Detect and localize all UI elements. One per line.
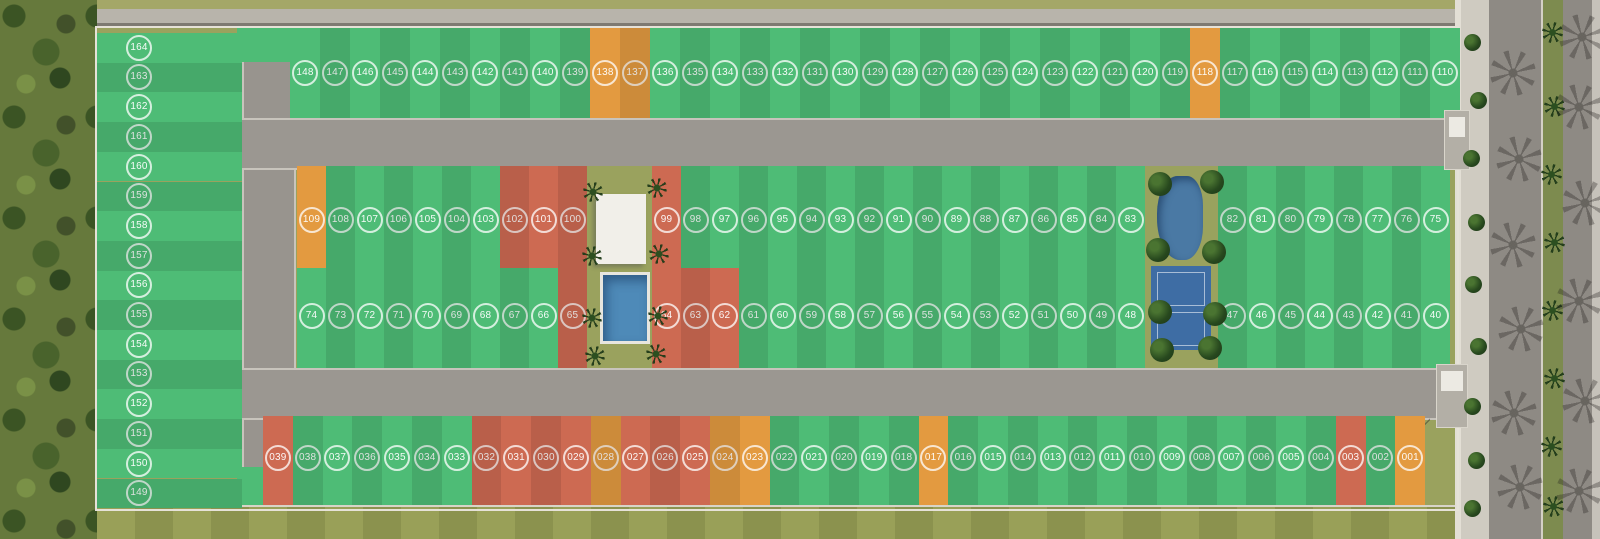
lot-155[interactable]: 155 xyxy=(97,300,242,330)
lot-number-badge: 150 xyxy=(126,451,152,477)
lot-number-badge: 96 xyxy=(741,207,767,233)
lot-number-badge: 136 xyxy=(652,60,678,86)
lot-103[interactable]: 103 xyxy=(471,166,500,268)
lot-016[interactable]: 016 xyxy=(948,416,978,505)
lot-115[interactable]: 115 xyxy=(1280,28,1310,118)
lot-number-badge: 55 xyxy=(915,303,941,329)
lot-number-badge: 44 xyxy=(1307,303,1333,329)
lot-125[interactable]: 125 xyxy=(980,28,1010,118)
lot-number-badge: 94 xyxy=(799,207,825,233)
lot-number-badge: 158 xyxy=(126,213,152,239)
lot-number-badge: 140 xyxy=(532,60,558,86)
east-road-far-sidewalk xyxy=(1592,0,1600,539)
tree-icon xyxy=(1200,170,1224,194)
lot-53[interactable]: 53 xyxy=(971,268,1000,368)
lot-68[interactable]: 68 xyxy=(471,268,500,368)
shrub-icon xyxy=(1464,500,1481,517)
lot-027[interactable]: 027 xyxy=(621,416,651,505)
lot-128[interactable]: 128 xyxy=(890,28,920,118)
lot-number-badge: 149 xyxy=(126,480,152,506)
lot-number-badge: 42 xyxy=(1365,303,1391,329)
lot-158[interactable]: 158 xyxy=(97,211,242,241)
lot-149[interactable]: 149 xyxy=(97,479,242,509)
lot-number-badge: 110 xyxy=(1432,60,1458,86)
lot-number-badge: 129 xyxy=(862,60,888,86)
lot-number-badge: 43 xyxy=(1336,303,1362,329)
lot-number-badge: 72 xyxy=(357,303,383,329)
lot-number-badge: 127 xyxy=(922,60,948,86)
lot-152[interactable]: 152 xyxy=(97,389,242,419)
lot-038[interactable]: 038 xyxy=(293,416,323,505)
lot-43[interactable]: 43 xyxy=(1334,268,1363,368)
lot-number-badge: 025 xyxy=(682,445,708,471)
lot-number-badge: 83 xyxy=(1118,207,1144,233)
lot-93[interactable]: 93 xyxy=(826,166,855,268)
lot-number-badge: 99 xyxy=(654,207,680,233)
north-boundary-land xyxy=(97,0,1455,28)
lot-62[interactable]: 62 xyxy=(710,268,739,368)
lot-140[interactable]: 140 xyxy=(530,28,560,118)
lot-number-badge: 60 xyxy=(770,303,796,329)
lot-145[interactable]: 145 xyxy=(380,28,410,118)
lot-number-badge: 126 xyxy=(952,60,978,86)
lot-122[interactable]: 122 xyxy=(1070,28,1100,118)
lot-75[interactable]: 75 xyxy=(1421,166,1450,268)
lot-77[interactable]: 77 xyxy=(1363,166,1392,268)
tree-icon xyxy=(1203,302,1227,326)
master-plan-canvas: 1641631621611601591581571561551541531521… xyxy=(0,0,1600,539)
lot-number-badge: 125 xyxy=(982,60,1008,86)
lot-number-badge: 123 xyxy=(1042,60,1068,86)
lot-028[interactable]: 028 xyxy=(591,416,621,505)
lot-number-badge: 030 xyxy=(533,445,559,471)
lot-number-badge: 111 xyxy=(1402,60,1428,86)
lot-108[interactable]: 108 xyxy=(326,166,355,268)
lot-number-badge: 41 xyxy=(1394,303,1420,329)
lot-number-badge: 66 xyxy=(531,303,557,329)
palm-shadow xyxy=(1556,278,1600,324)
lot-71[interactable]: 71 xyxy=(384,268,413,368)
lot-102[interactable]: 102 xyxy=(500,166,529,268)
lot-017[interactable]: 017 xyxy=(919,416,949,505)
lot-020[interactable]: 020 xyxy=(829,416,859,505)
lot-number-badge: 100 xyxy=(560,207,586,233)
tree-icon xyxy=(1150,338,1174,362)
palm-shadow xyxy=(1490,222,1536,268)
lot-113[interactable]: 113 xyxy=(1340,28,1370,118)
lot-number-badge: 112 xyxy=(1372,60,1398,86)
lot-number-badge: 133 xyxy=(742,60,768,86)
lot-number-badge: 012 xyxy=(1069,445,1095,471)
palm-tree-icon xyxy=(648,306,668,326)
lot-018[interactable]: 018 xyxy=(889,416,919,505)
lot-number-badge: 79 xyxy=(1307,207,1333,233)
lot-97[interactable]: 97 xyxy=(710,166,739,268)
lot-number-badge: 51 xyxy=(1031,303,1057,329)
lot-50[interactable]: 50 xyxy=(1058,268,1087,368)
lot-85[interactable]: 85 xyxy=(1058,166,1087,268)
lot-number-badge: 93 xyxy=(828,207,854,233)
lot-84[interactable]: 84 xyxy=(1087,166,1116,268)
lot-number-badge: 020 xyxy=(831,445,857,471)
lot-number-badge: 002 xyxy=(1367,445,1393,471)
lot-number-badge: 010 xyxy=(1129,445,1155,471)
lot-135[interactable]: 135 xyxy=(680,28,710,118)
lot-number-badge: 023 xyxy=(742,445,768,471)
lot-114[interactable]: 114 xyxy=(1310,28,1340,118)
lot-number-badge: 98 xyxy=(683,207,709,233)
lot-011[interactable]: 011 xyxy=(1097,416,1127,505)
lot-61[interactable]: 61 xyxy=(739,268,768,368)
lot-number-badge: 033 xyxy=(444,445,470,471)
lot-80[interactable]: 80 xyxy=(1276,166,1305,268)
lot-78[interactable]: 78 xyxy=(1334,166,1363,268)
lot-153[interactable]: 153 xyxy=(97,360,242,390)
lot-142[interactable]: 142 xyxy=(470,28,500,118)
lot-132[interactable]: 132 xyxy=(770,28,800,118)
lot-021[interactable]: 021 xyxy=(799,416,829,505)
lot-63[interactable]: 63 xyxy=(681,268,710,368)
lot-86[interactable]: 86 xyxy=(1029,166,1058,268)
lot-number-badge: 026 xyxy=(652,445,678,471)
lot-012[interactable]: 012 xyxy=(1068,416,1098,505)
lot-81[interactable]: 81 xyxy=(1247,166,1276,268)
lot-number-badge: 109 xyxy=(299,207,325,233)
lot-029[interactable]: 029 xyxy=(561,416,591,505)
lot-number-badge: 120 xyxy=(1132,60,1158,86)
lot-69[interactable]: 69 xyxy=(442,268,471,368)
lot-116[interactable]: 116 xyxy=(1250,28,1280,118)
lot-number-badge: 118 xyxy=(1192,60,1218,86)
lot-139[interactable]: 139 xyxy=(560,28,590,118)
lot-number-badge: 156 xyxy=(126,272,152,298)
lot-number-badge: 84 xyxy=(1089,207,1115,233)
lot-number-badge: 116 xyxy=(1252,60,1278,86)
lot-147[interactable]: 147 xyxy=(320,28,350,118)
lot-133[interactable]: 133 xyxy=(740,28,770,118)
lot-number-badge: 85 xyxy=(1060,207,1086,233)
lot-006[interactable]: 006 xyxy=(1246,416,1276,505)
lot-005[interactable]: 005 xyxy=(1276,416,1306,505)
lot-number-badge: 130 xyxy=(832,60,858,86)
lot-number-badge: 024 xyxy=(712,445,738,471)
lot-037[interactable]: 037 xyxy=(323,416,353,505)
lot-123[interactable]: 123 xyxy=(1040,28,1070,118)
lot-number-badge: 115 xyxy=(1282,60,1308,86)
lot-number-badge: 50 xyxy=(1060,303,1086,329)
lot-48[interactable]: 48 xyxy=(1116,268,1145,368)
lot-number-badge: 105 xyxy=(415,207,441,233)
lot-83[interactable]: 83 xyxy=(1116,166,1145,268)
lot-74[interactable]: 74 xyxy=(297,268,326,368)
lot-70[interactable]: 70 xyxy=(413,268,442,368)
lot-127[interactable]: 127 xyxy=(920,28,950,118)
lot-031[interactable]: 031 xyxy=(501,416,531,505)
lot-039[interactable]: 039 xyxy=(263,416,293,505)
lot-106[interactable]: 106 xyxy=(384,166,413,268)
lot-number-badge: 139 xyxy=(562,60,588,86)
palm-shadow xyxy=(1491,390,1537,436)
lot-46[interactable]: 46 xyxy=(1247,268,1276,368)
lot-number-badge: 73 xyxy=(328,303,354,329)
lot-number-badge: 155 xyxy=(126,302,152,328)
lot-58[interactable]: 58 xyxy=(826,268,855,368)
swimming-pool xyxy=(600,272,650,344)
lot-45[interactable]: 45 xyxy=(1276,268,1305,368)
lot-number-badge: 021 xyxy=(801,445,827,471)
gatehouse-roof xyxy=(1449,117,1465,137)
lot-143[interactable]: 143 xyxy=(440,28,470,118)
lot-56[interactable]: 56 xyxy=(884,268,913,368)
lot-117[interactable]: 117 xyxy=(1220,28,1250,118)
lot-number-badge: 131 xyxy=(802,60,828,86)
lot-001[interactable]: 001 xyxy=(1395,416,1425,505)
lot-148[interactable]: 148 xyxy=(290,28,320,118)
palm-tree-icon xyxy=(585,346,605,366)
lot-104[interactable]: 104 xyxy=(442,166,471,268)
lot-009[interactable]: 009 xyxy=(1157,416,1187,505)
lot-number-badge: 144 xyxy=(412,60,438,86)
lot-number-badge: 013 xyxy=(1040,445,1066,471)
lot-150[interactable]: 150 xyxy=(97,449,242,479)
lot-008[interactable]: 008 xyxy=(1187,416,1217,505)
lot-66[interactable]: 66 xyxy=(529,268,558,368)
lot-154[interactable]: 154 xyxy=(97,330,242,360)
lot-number-badge: 45 xyxy=(1278,303,1304,329)
lot-number-badge: 68 xyxy=(473,303,499,329)
lot-136[interactable]: 136 xyxy=(650,28,680,118)
lot-number-badge: 148 xyxy=(292,60,318,86)
lot-015[interactable]: 015 xyxy=(978,416,1008,505)
lot-003[interactable]: 003 xyxy=(1336,416,1366,505)
lot-92[interactable]: 92 xyxy=(855,166,884,268)
lot-number-badge: 61 xyxy=(741,303,767,329)
lot-91[interactable]: 91 xyxy=(884,166,913,268)
lot-number-badge: 53 xyxy=(973,303,999,329)
palm-shadow xyxy=(1498,306,1544,352)
lot-67[interactable]: 67 xyxy=(500,268,529,368)
lot-number-badge: 101 xyxy=(531,207,557,233)
east-road-lane-east xyxy=(1563,0,1592,539)
palm-shadow xyxy=(1562,180,1600,226)
shrub-icon xyxy=(1465,276,1482,293)
lot-number-badge: 138 xyxy=(592,60,618,86)
lot-40[interactable]: 40 xyxy=(1421,268,1450,368)
lot-79[interactable]: 79 xyxy=(1305,166,1334,268)
palm-shadow xyxy=(1490,50,1536,96)
lot-033[interactable]: 033 xyxy=(442,416,472,505)
lot-034[interactable]: 034 xyxy=(412,416,442,505)
lot-number-badge: 92 xyxy=(857,207,883,233)
shrub-icon xyxy=(1470,338,1487,355)
lot-163[interactable]: 163 xyxy=(97,63,242,93)
lot-number-badge: 48 xyxy=(1118,303,1144,329)
tree-icon xyxy=(1202,240,1226,264)
lot-007[interactable]: 007 xyxy=(1217,416,1247,505)
lot-126[interactable]: 126 xyxy=(950,28,980,118)
lot-131[interactable]: 131 xyxy=(800,28,830,118)
lot-004[interactable]: 004 xyxy=(1306,416,1336,505)
lot-60[interactable]: 60 xyxy=(768,268,797,368)
lot-112[interactable]: 112 xyxy=(1370,28,1400,118)
lot-number-badge: 88 xyxy=(973,207,999,233)
lot-52[interactable]: 52 xyxy=(1000,268,1029,368)
lot-110[interactable]: 110 xyxy=(1430,28,1460,118)
lot-57[interactable]: 57 xyxy=(855,268,884,368)
palm-tree-icon xyxy=(582,246,602,266)
lot-025[interactable]: 025 xyxy=(680,416,710,505)
lot-035[interactable]: 035 xyxy=(382,416,412,505)
lot-88[interactable]: 88 xyxy=(971,166,1000,268)
lot-130[interactable]: 130 xyxy=(830,28,860,118)
lot-number-badge: 49 xyxy=(1089,303,1115,329)
lot-number-badge: 007 xyxy=(1218,445,1244,471)
lot-number-badge: 58 xyxy=(828,303,854,329)
lot-107[interactable]: 107 xyxy=(355,166,384,268)
lot-number-badge: 004 xyxy=(1308,445,1334,471)
lot-019[interactable]: 019 xyxy=(859,416,889,505)
lot-87[interactable]: 87 xyxy=(1000,166,1029,268)
lot-160[interactable]: 160 xyxy=(97,152,242,182)
lot-120[interactable]: 120 xyxy=(1130,28,1160,118)
lot-number-badge: 153 xyxy=(126,361,152,387)
shrub-icon xyxy=(1463,150,1480,167)
lot-111[interactable]: 111 xyxy=(1400,28,1430,118)
lot-022[interactable]: 022 xyxy=(770,416,800,505)
lot-141[interactable]: 141 xyxy=(500,28,530,118)
lot-98[interactable]: 98 xyxy=(681,166,710,268)
lot-013[interactable]: 013 xyxy=(1038,416,1068,505)
tree-icon xyxy=(1198,336,1222,360)
lot-number-badge: 006 xyxy=(1248,445,1274,471)
lot-49[interactable]: 49 xyxy=(1087,268,1116,368)
lot-023[interactable]: 023 xyxy=(740,416,770,505)
lot-number-badge: 77 xyxy=(1365,207,1391,233)
lot-89[interactable]: 89 xyxy=(942,166,971,268)
lot-95[interactable]: 95 xyxy=(768,166,797,268)
lot-number-badge: 135 xyxy=(682,60,708,86)
lot-number-badge: 104 xyxy=(444,207,470,233)
palm-tree-icon xyxy=(1544,368,1565,389)
lot-010[interactable]: 010 xyxy=(1127,416,1157,505)
lot-number-badge: 52 xyxy=(1002,303,1028,329)
lot-032[interactable]: 032 xyxy=(472,416,502,505)
lot-number-badge: 038 xyxy=(295,445,321,471)
lot-026[interactable]: 026 xyxy=(650,416,680,505)
lot-162[interactable]: 162 xyxy=(97,92,242,122)
lot-number-badge: 160 xyxy=(126,154,152,180)
lot-118[interactable]: 118 xyxy=(1190,28,1220,118)
lot-51[interactable]: 51 xyxy=(1029,268,1058,368)
lot-94[interactable]: 94 xyxy=(797,166,826,268)
lot-144[interactable]: 144 xyxy=(410,28,440,118)
lot-number-badge: 151 xyxy=(126,421,152,447)
lot-036[interactable]: 036 xyxy=(352,416,382,505)
gatehouse-south xyxy=(1436,364,1468,428)
palm-tree-icon xyxy=(1541,436,1562,457)
lot-96[interactable]: 96 xyxy=(739,166,768,268)
palm-shadow xyxy=(1556,468,1600,514)
lot-159[interactable]: 159 xyxy=(97,182,242,212)
lot-105[interactable]: 105 xyxy=(413,166,442,268)
lot-161[interactable]: 161 xyxy=(97,122,242,152)
lot-137[interactable]: 137 xyxy=(620,28,650,118)
tree-icon xyxy=(1148,300,1172,324)
lot-number-badge: 137 xyxy=(622,60,648,86)
tree-icon xyxy=(1146,238,1170,262)
lot-156[interactable]: 156 xyxy=(97,271,242,301)
lot-number-badge: 011 xyxy=(1099,445,1125,471)
lot-72[interactable]: 72 xyxy=(355,268,384,368)
lot-121[interactable]: 121 xyxy=(1100,28,1130,118)
shrub-icon xyxy=(1468,452,1485,469)
lot-number-badge: 81 xyxy=(1249,207,1275,233)
lot-number-badge: 017 xyxy=(920,445,946,471)
lot-42[interactable]: 42 xyxy=(1363,268,1392,368)
lot-41[interactable]: 41 xyxy=(1392,268,1421,368)
lot-119[interactable]: 119 xyxy=(1160,28,1190,118)
lot-number-badge: 164 xyxy=(126,35,152,61)
lot-number-badge: 128 xyxy=(892,60,918,86)
palm-shadow xyxy=(1496,136,1542,182)
lot-76[interactable]: 76 xyxy=(1392,166,1421,268)
lot-024[interactable]: 024 xyxy=(710,416,740,505)
lot-129[interactable]: 129 xyxy=(860,28,890,118)
lot-146[interactable]: 146 xyxy=(350,28,380,118)
lot-124[interactable]: 124 xyxy=(1010,28,1040,118)
lot-54[interactable]: 54 xyxy=(942,268,971,368)
lot-number-badge: 113 xyxy=(1342,60,1368,86)
lot-number-badge: 022 xyxy=(771,445,797,471)
lot-109[interactable]: 109 xyxy=(297,166,326,268)
lot-151[interactable]: 151 xyxy=(97,419,242,449)
palm-shadow xyxy=(1556,84,1600,130)
lot-number-badge: 132 xyxy=(772,60,798,86)
lot-number-badge: 102 xyxy=(502,207,528,233)
lot-number-badge: 71 xyxy=(386,303,412,329)
lot-134[interactable]: 134 xyxy=(710,28,740,118)
lot-55[interactable]: 55 xyxy=(913,268,942,368)
lot-number-badge: 154 xyxy=(126,332,152,358)
lot-157[interactable]: 157 xyxy=(97,241,242,271)
lot-44[interactable]: 44 xyxy=(1305,268,1334,368)
lot-number-badge: 162 xyxy=(126,94,152,120)
shrub-icon xyxy=(1470,92,1487,109)
lot-73[interactable]: 73 xyxy=(326,268,355,368)
lot-002[interactable]: 002 xyxy=(1366,416,1396,505)
lot-101[interactable]: 101 xyxy=(529,166,558,268)
lot-90[interactable]: 90 xyxy=(913,166,942,268)
lot-number-badge: 027 xyxy=(622,445,648,471)
palm-tree-icon xyxy=(646,344,666,364)
lot-164[interactable]: 164 xyxy=(97,33,242,63)
lot-number-badge: 106 xyxy=(386,207,412,233)
green-patch-northwest xyxy=(237,28,292,64)
lot-number-badge: 008 xyxy=(1189,445,1215,471)
lot-030[interactable]: 030 xyxy=(531,416,561,505)
lot-number-badge: 152 xyxy=(126,391,152,417)
palm-tree-icon xyxy=(1544,232,1565,253)
lot-014[interactable]: 014 xyxy=(1008,416,1038,505)
lot-59[interactable]: 59 xyxy=(797,268,826,368)
lot-number-badge: 89 xyxy=(944,207,970,233)
palm-tree-icon xyxy=(649,244,669,264)
lot-number-badge: 019 xyxy=(861,445,887,471)
shrub-icon xyxy=(1468,214,1485,231)
lot-number-badge: 76 xyxy=(1394,207,1420,233)
lot-138[interactable]: 138 xyxy=(590,28,620,118)
lot-number-badge: 95 xyxy=(770,207,796,233)
